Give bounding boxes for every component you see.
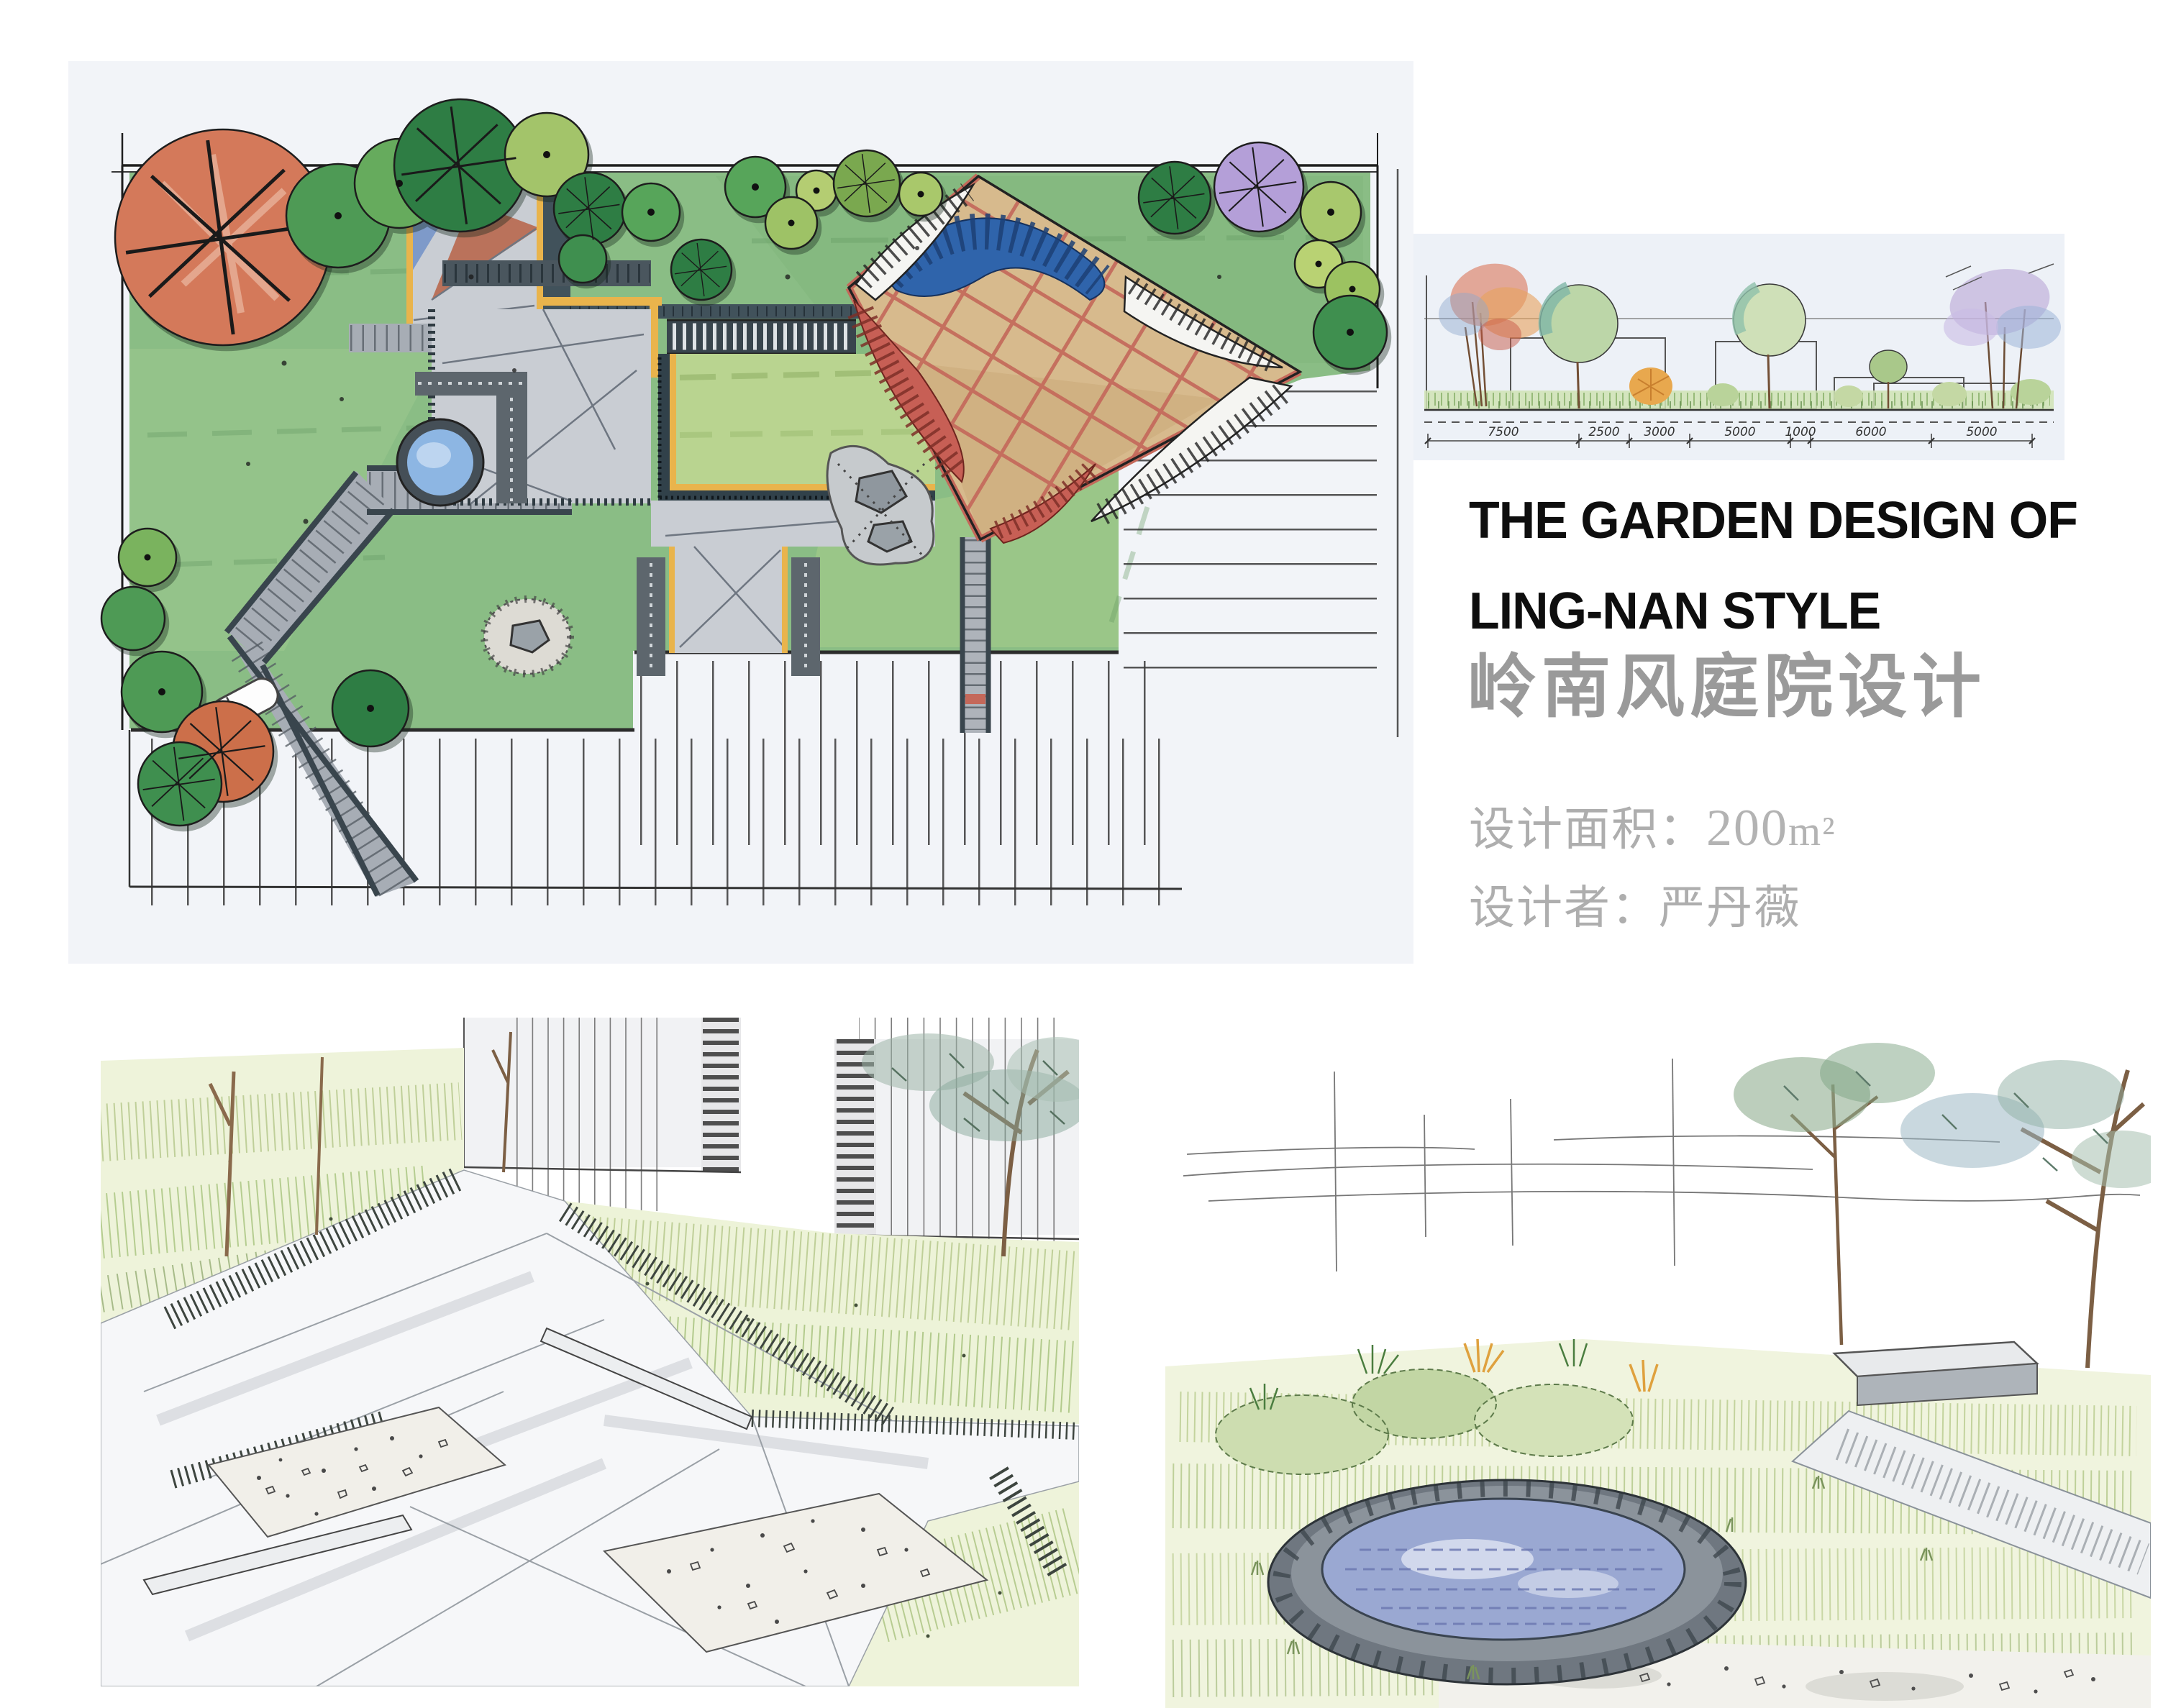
stone-bench — [1834, 1342, 2037, 1405]
path-perspective-sketch — [101, 1018, 1079, 1686]
design-area-value: 200 — [1706, 799, 1788, 857]
title-english-line1: THE GARDEN DESIGN OF — [1469, 495, 2077, 547]
pond-perspective-sketch — [1165, 1028, 2151, 1708]
dim-label: 3000 — [1644, 425, 1675, 439]
dim-label: 1000 — [1785, 425, 1816, 439]
garden-master-plan — [68, 61, 1413, 964]
dim-label: 5000 — [1966, 425, 1997, 439]
title-english-line2: LING-NAN STYLE — [1469, 585, 1880, 637]
elevation-sketch: 7500 2500 3000 5000 1000 6000 5000 — [1413, 234, 2064, 460]
dim-label: 7500 — [1488, 425, 1519, 439]
design-area-unit: m² — [1788, 808, 1836, 854]
gravel-ring-with-rock — [484, 599, 570, 674]
design-area-label: 设计面积： — [1469, 803, 1706, 855]
pond — [1268, 1480, 1746, 1684]
dim-label: 6000 — [1855, 425, 1886, 439]
presentation-board: 7500 2500 3000 5000 1000 6000 5000 THE G… — [0, 0, 2158, 1708]
design-area-line: 设计面积：200m² — [1469, 802, 1836, 854]
dim-label: 5000 — [1724, 425, 1755, 439]
yellow-edge — [539, 297, 662, 306]
brick-walk-column — [962, 537, 988, 733]
designer-line: 设计者：严丹薇 — [1469, 885, 1801, 931]
title-chinese: 岭南风庭院设计 — [1467, 653, 1986, 722]
step-bridge-band — [667, 320, 856, 354]
dim-label: 2500 — [1588, 425, 1619, 439]
plan-pond — [397, 419, 483, 506]
